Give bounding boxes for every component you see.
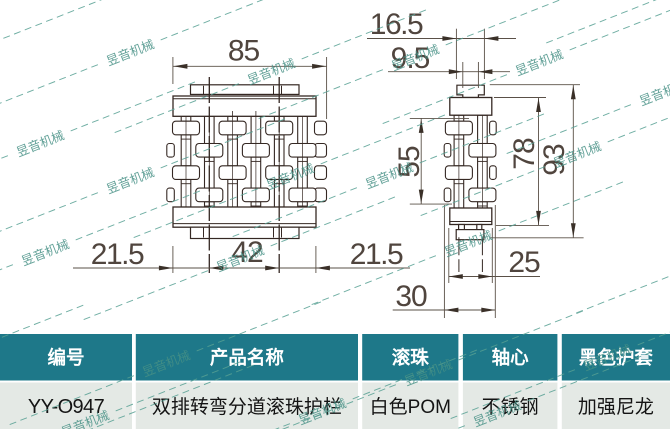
- svg-text:白色POM: 白色POM: [370, 396, 451, 418]
- svg-text:昱音机械: 昱音机械: [19, 236, 71, 268]
- svg-text:16.5: 16.5: [370, 8, 423, 41]
- svg-text:21.5: 21.5: [91, 238, 144, 271]
- svg-text:轴心: 轴心: [492, 347, 530, 368]
- svg-text:25: 25: [508, 246, 540, 279]
- svg-text:昱音机械: 昱音机械: [513, 46, 565, 78]
- svg-text:昱音机械: 昱音机械: [637, 76, 670, 108]
- svg-text:85: 85: [228, 35, 260, 68]
- svg-text:滚珠: 滚珠: [392, 347, 430, 368]
- svg-text:21.5: 21.5: [350, 238, 403, 271]
- svg-text:加强尼龙: 加强尼龙: [578, 396, 654, 418]
- svg-text:产品名称: 产品名称: [210, 347, 285, 368]
- svg-text:昱音机械: 昱音机械: [104, 164, 156, 196]
- svg-text:编号: 编号: [47, 347, 84, 368]
- svg-text:昱音机械: 昱音机械: [14, 127, 66, 159]
- svg-text:78: 78: [508, 138, 541, 170]
- svg-text:昱音机械: 昱音机械: [104, 36, 156, 68]
- svg-text:昱音机械: 昱音机械: [551, 138, 603, 170]
- svg-text:昱音机械: 昱音机械: [363, 159, 415, 191]
- svg-text:30: 30: [395, 280, 427, 313]
